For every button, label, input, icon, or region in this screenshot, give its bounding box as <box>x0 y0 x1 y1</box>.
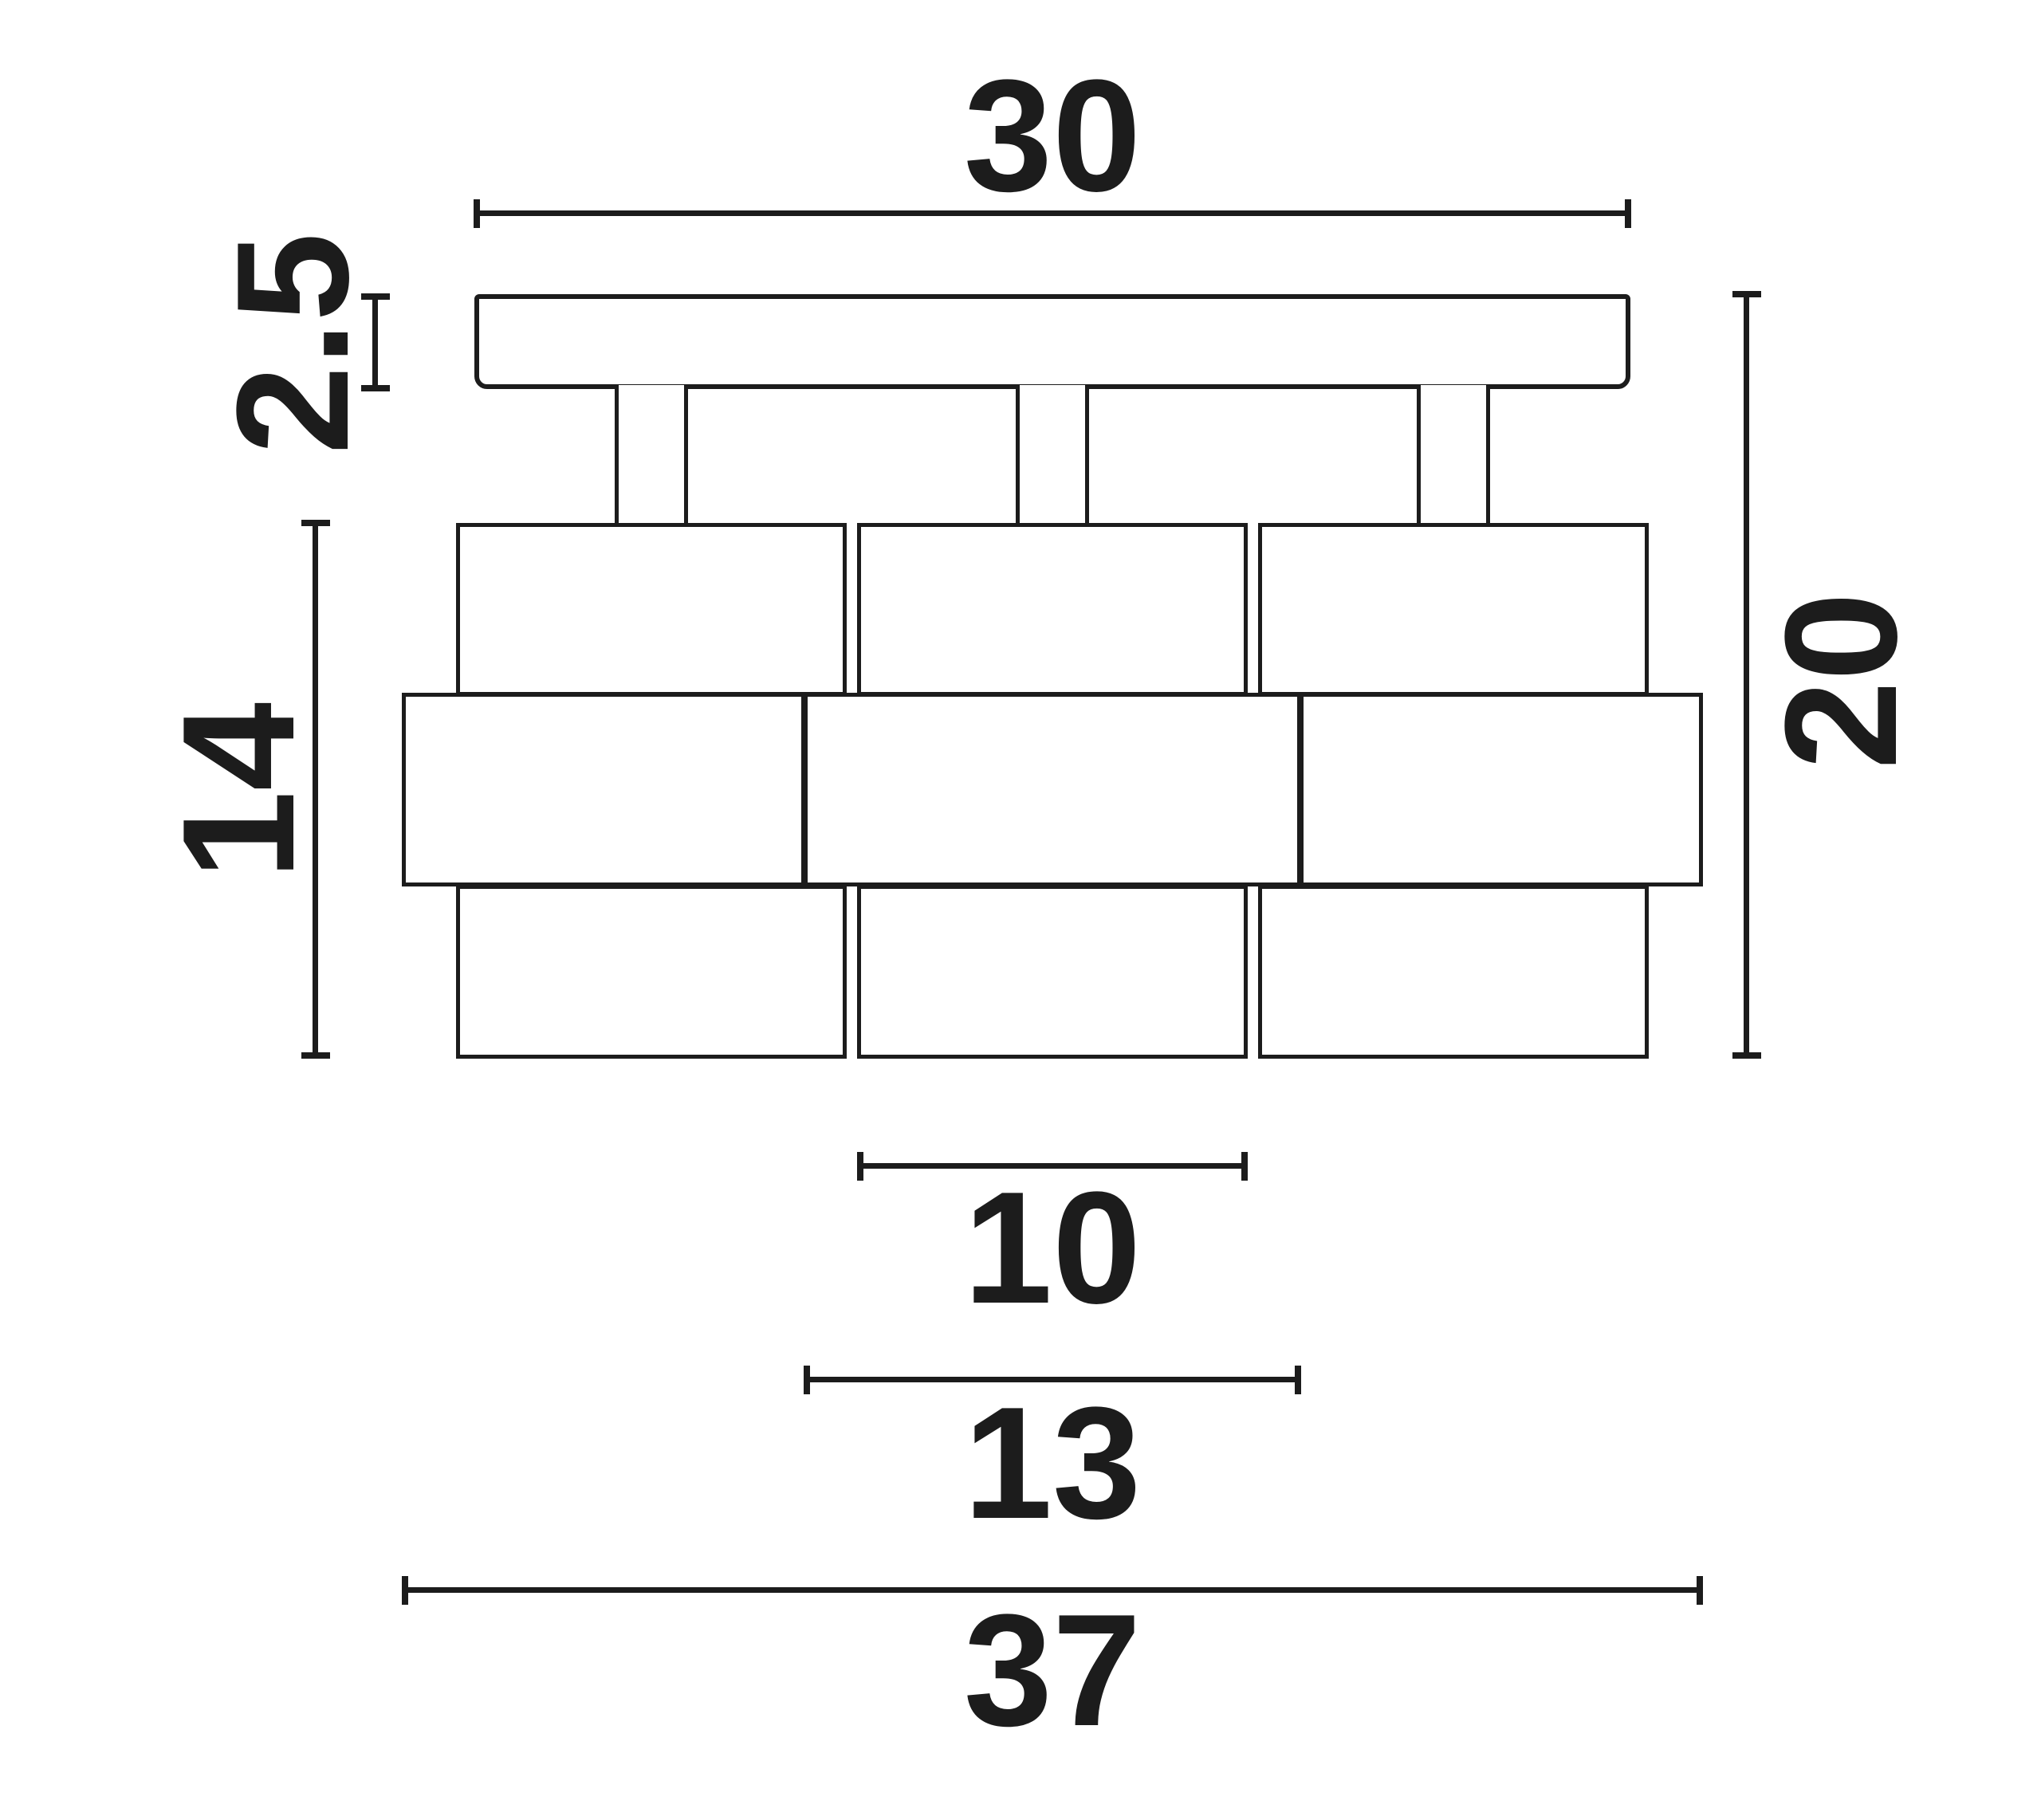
dim-band-width-tick-left <box>857 1152 863 1181</box>
shade-center-bottom-band <box>857 885 1248 1059</box>
dim-total-height-label: 20 <box>1762 592 1921 769</box>
mounting-plate <box>474 294 1630 389</box>
dim-total-height-line <box>1744 294 1749 1059</box>
dim-band-width-tick-right <box>1241 1152 1248 1181</box>
dim-shade-height-label: 14 <box>159 702 319 879</box>
dim-band-width-label: 10 <box>964 1169 1141 1328</box>
shade-right-middle-band <box>1300 693 1703 886</box>
stem-right <box>1417 385 1490 525</box>
dim-middle-band-width-tick-left <box>804 1366 810 1394</box>
stem-center <box>1016 385 1089 525</box>
dim-plate-width-tick-right <box>1625 199 1631 228</box>
shade-right-bottom-band <box>1258 885 1649 1059</box>
dim-plate-width-tick-left <box>474 199 480 228</box>
dim-middle-band-width-tick-right <box>1295 1366 1301 1394</box>
shade-left-bottom-band <box>456 885 847 1059</box>
dim-overall-width-tick-left <box>402 1576 408 1605</box>
dim-plate-thickness-label: 2.5 <box>214 233 373 454</box>
dim-middle-band-width-label: 13 <box>964 1384 1141 1543</box>
dimension-drawing: 30 2.5 14 20 10 13 37 <box>0 0 2041 1820</box>
shade-center-middle-band <box>804 693 1301 886</box>
dim-overall-width-label: 37 <box>964 1591 1141 1751</box>
stem-left <box>615 385 688 525</box>
shade-center-top-band <box>857 523 1248 696</box>
dim-total-height-tick-bottom <box>1732 1052 1761 1059</box>
dim-overall-width-tick-right <box>1697 1576 1703 1605</box>
dim-plate-width-label: 30 <box>964 57 1141 216</box>
dim-shade-height-tick-top <box>301 520 330 526</box>
dim-shade-height-tick-bottom <box>301 1052 330 1059</box>
shade-right-top-band <box>1258 523 1649 696</box>
shade-left-middle-band <box>402 693 805 886</box>
shade-left-top-band <box>456 523 847 696</box>
dim-total-height-tick-top <box>1732 291 1761 297</box>
